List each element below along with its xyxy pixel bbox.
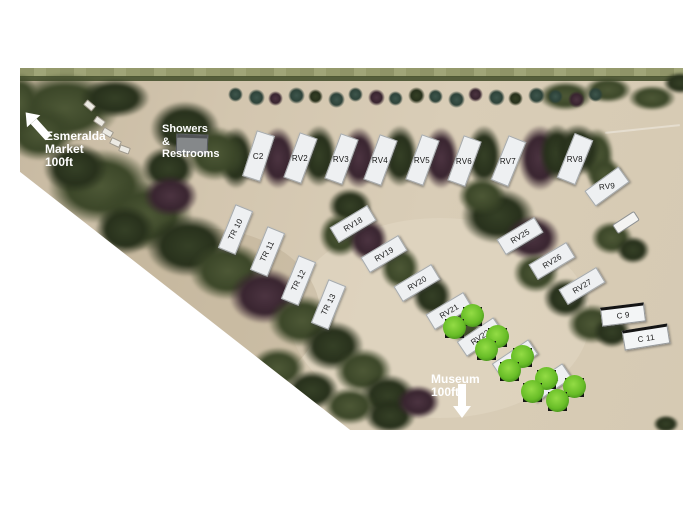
- tree: [95, 205, 155, 255]
- tree: [653, 415, 679, 433]
- tree: [616, 236, 650, 264]
- site-label: RV9: [599, 181, 616, 192]
- tree: [663, 72, 698, 94]
- site-label: TR 11: [258, 239, 276, 263]
- tree: [80, 78, 150, 118]
- market-distance: 100ft: [45, 156, 106, 169]
- round-tree: [288, 87, 305, 104]
- round-tree: [228, 87, 243, 102]
- bush-icon: [548, 392, 567, 411]
- site-label: RV8: [567, 155, 583, 164]
- showers-label-line: Restrooms: [162, 148, 219, 161]
- site-pad-C9: C 9: [600, 302, 646, 326]
- tree: [143, 175, 198, 217]
- site-label: RV27: [571, 277, 593, 295]
- bush-leaf: [498, 359, 521, 382]
- down-arrow-icon: [453, 384, 471, 418]
- round-tree: [568, 91, 585, 108]
- site-label: RV3: [333, 155, 349, 164]
- aerial-photo: Esmeralda Market 100ft Showers & Restroo…: [20, 68, 683, 430]
- round-tree: [428, 89, 443, 104]
- round-tree: [528, 87, 545, 104]
- round-tree: [508, 91, 523, 106]
- bush-icon: [445, 319, 464, 338]
- site-label: TR 10: [226, 217, 244, 241]
- round-tree: [468, 87, 483, 102]
- round-tree: [248, 89, 265, 106]
- site-label: TR 12: [289, 268, 307, 292]
- round-tree: [268, 91, 283, 106]
- round-tree: [328, 91, 345, 108]
- site-label: TR 13: [319, 292, 337, 316]
- arrow-shaft: [458, 384, 466, 406]
- round-tree: [408, 87, 425, 104]
- round-tree: [548, 89, 563, 104]
- site-label: RV4: [372, 156, 388, 165]
- campground-map-screenshot: Esmeralda Market 100ft Showers & Restroo…: [0, 0, 700, 526]
- bush-icon: [500, 362, 519, 381]
- showers-label: Showers & Restrooms: [162, 123, 219, 161]
- round-tree: [348, 87, 363, 102]
- bush-icon: [463, 307, 482, 326]
- round-tree: [388, 91, 403, 106]
- market-label: Esmeralda Market 100ft: [45, 130, 106, 169]
- bush-leaf: [443, 316, 466, 339]
- round-tree: [588, 87, 603, 102]
- site-label: RV7: [500, 157, 516, 166]
- site-label: RV5: [414, 156, 430, 165]
- sand-track: [605, 124, 680, 134]
- site-label: RV2: [292, 154, 308, 163]
- bush-leaf: [521, 380, 544, 403]
- bush-leaf: [546, 389, 569, 412]
- arrow-head: [453, 406, 471, 418]
- site-label: C 11: [637, 332, 655, 344]
- bush-icon: [477, 341, 496, 360]
- site-label: C 9: [616, 310, 630, 321]
- bush-icon: [523, 383, 542, 402]
- showers-label-line: Showers: [162, 123, 219, 136]
- round-tree: [308, 89, 323, 104]
- site-label: RV6: [456, 157, 472, 166]
- bush-leaf: [475, 338, 498, 361]
- site-label: C2: [253, 151, 264, 160]
- round-tree: [448, 91, 465, 108]
- round-tree: [488, 89, 505, 106]
- bush-icon: [565, 378, 584, 397]
- round-tree: [368, 89, 385, 106]
- showers-label-line: &: [162, 136, 219, 149]
